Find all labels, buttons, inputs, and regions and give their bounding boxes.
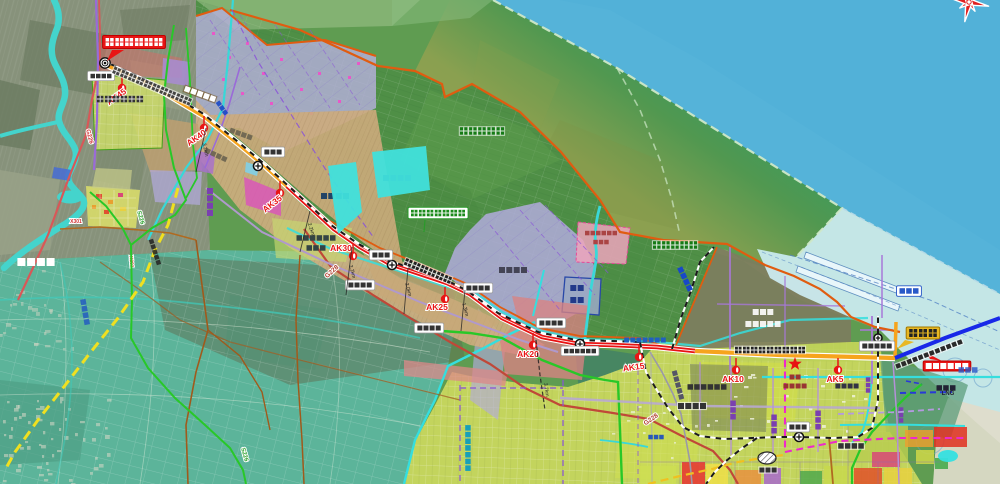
svg-text:X301: X301 — [70, 219, 82, 225]
svg-text:AK5: AK5 — [826, 374, 843, 384]
svg-text:AK10: AK10 — [722, 374, 744, 384]
svg-text:AK30: AK30 — [330, 243, 352, 253]
svg-text:AK25: AK25 — [426, 302, 448, 312]
svg-text:AK20: AK20 — [517, 349, 539, 359]
svg-text:LNG: LNG — [942, 391, 955, 397]
